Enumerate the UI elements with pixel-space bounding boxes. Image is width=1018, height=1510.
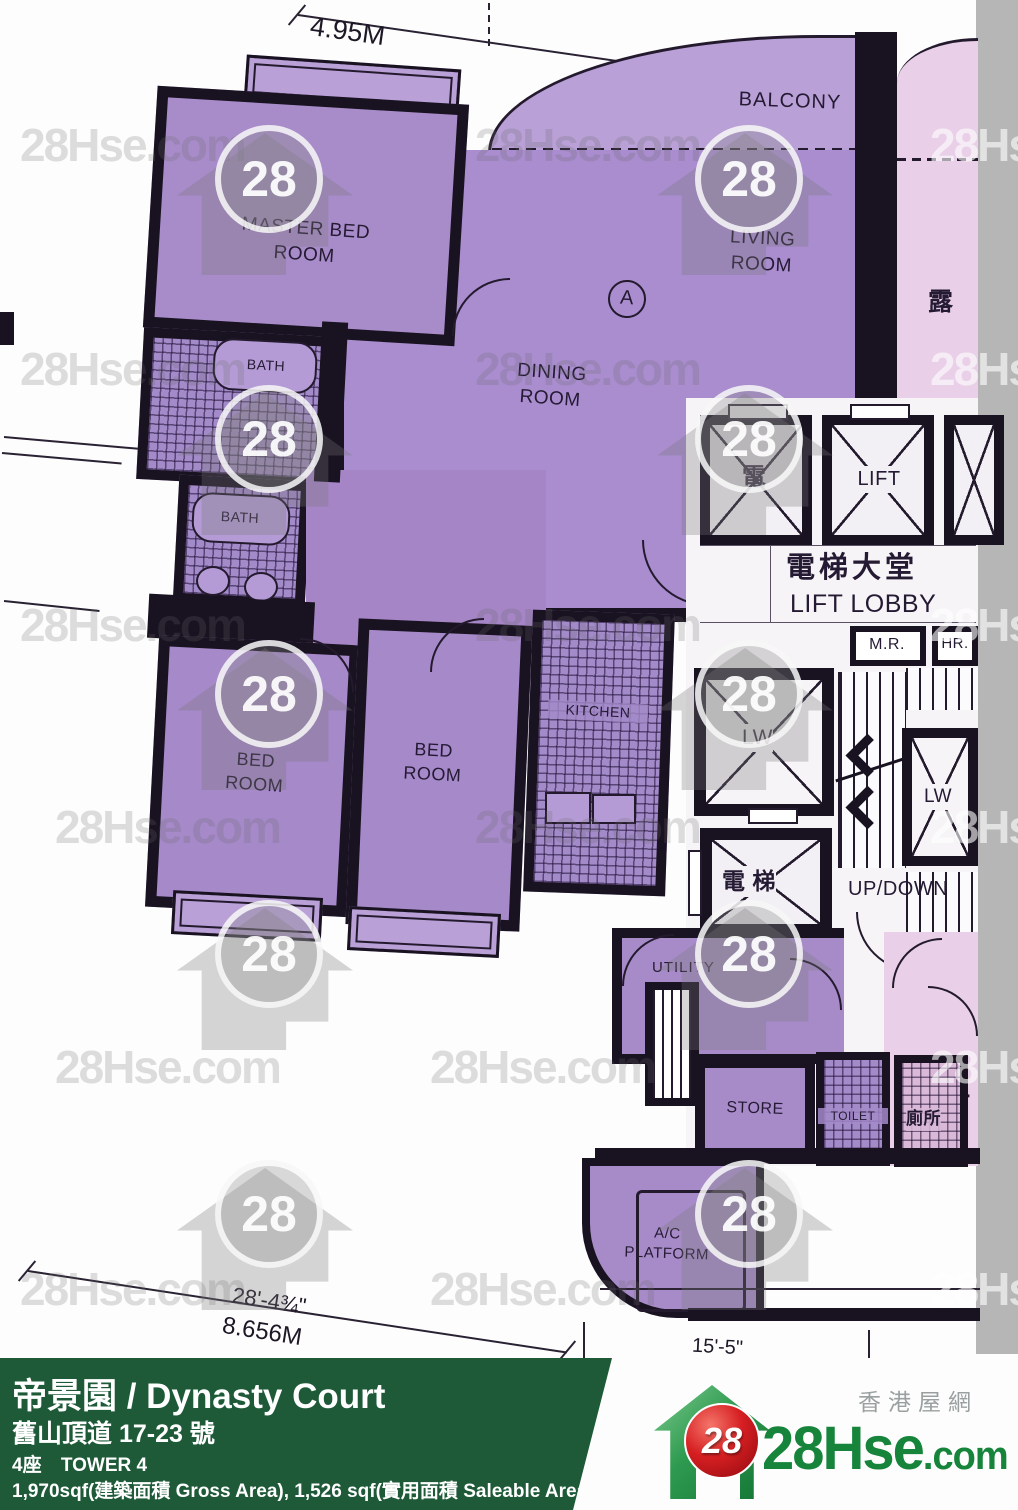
stairs-updown-label: UP/DOWN xyxy=(848,876,948,903)
dimension-tick xyxy=(868,1330,870,1358)
kitchen-counter xyxy=(592,794,636,824)
lift-shaft-electric-label: 電 xyxy=(742,462,767,494)
tower-en: TOWER 4 xyxy=(61,1455,147,1476)
lift-door xyxy=(688,850,702,916)
estate-areas: 1,970sqf(建築面積 Gross Area), 1,526 sqf(實用面… xyxy=(12,1476,593,1503)
hose-reel-label: HR. xyxy=(936,634,974,654)
bedroom-right-bay xyxy=(347,906,501,958)
brand-site-name: 28Hse.com xyxy=(762,1413,1008,1483)
kitchen-room xyxy=(523,610,675,897)
dimension-label-top: 4.95M xyxy=(308,11,387,52)
watermark-text: 28Hse.com xyxy=(55,1040,280,1094)
lift-door xyxy=(850,404,910,420)
basin xyxy=(196,566,230,596)
stairs-upper-right xyxy=(906,668,978,710)
kitchen-counter xyxy=(545,792,591,824)
bath-upper-label: BATH xyxy=(238,355,295,377)
hallway xyxy=(306,470,546,645)
lift-well-right-label: LW xyxy=(924,784,952,810)
lift-lobby-label-en: LIFT LOBBY xyxy=(790,588,936,622)
extension-line xyxy=(4,600,100,612)
lift-shaft-partial xyxy=(944,415,1004,545)
balcony-label: BALCONY xyxy=(735,86,846,117)
extension-line xyxy=(2,452,122,464)
store-label: STORE xyxy=(712,1097,799,1122)
scan-gray-band xyxy=(976,0,1018,1354)
living-room xyxy=(695,150,860,422)
dining-room-label: DINING ROOM xyxy=(506,357,595,414)
bedroom-left-label: BED ROOM xyxy=(208,745,301,800)
wall-bottom-2 xyxy=(688,1308,980,1321)
estate-tower: 4座 TOWER 4 xyxy=(12,1450,147,1477)
dimension-tick xyxy=(583,1322,585,1360)
site-line xyxy=(600,1288,980,1290)
toilet-zh-label: 廁所 xyxy=(906,1108,941,1131)
lift-label: LIFT xyxy=(844,466,914,493)
living-room-label: LIVING ROOM xyxy=(721,224,804,279)
lobby-floor-line xyxy=(700,545,976,546)
wall-bottom xyxy=(595,1148,980,1164)
footer-info-bar: 帝景園 / Dynasty Court 舊山頂道 17-23 號 4座 TOWE… xyxy=(0,1358,660,1510)
master-bedroom-label: MASTER BED ROOM xyxy=(233,211,376,272)
lobby-floor-line xyxy=(700,622,976,623)
wall-stub xyxy=(0,312,14,345)
ac-platform-label: A/C PLATFORM xyxy=(611,1222,722,1266)
lift-lobby-label-zh: 電梯大堂 xyxy=(786,549,918,588)
dimension-label-right-ft: 15'-5" xyxy=(691,1335,743,1361)
estate-address: 舊山頂道 17-23 號 xyxy=(12,1414,215,1450)
bath-lower-label: BATH xyxy=(212,507,269,529)
wall-living-right xyxy=(855,32,897,430)
louver-vent xyxy=(645,982,699,1106)
basin xyxy=(244,572,278,602)
tower-zh: 4座 xyxy=(12,1455,42,1476)
brand-site-suffix: .com xyxy=(923,1434,1008,1478)
bedroom-left-bay xyxy=(171,890,323,942)
extension-line xyxy=(4,436,152,451)
bedroom-right-label: BED ROOM xyxy=(387,736,479,789)
floorplan-canvas: 4.95M 露 MASTER BED ROOM BATH BATH BED RO… xyxy=(0,0,1018,1510)
lobby-floor-line xyxy=(770,545,771,623)
neighbor-balcony-label: 露 xyxy=(928,286,954,320)
lift-door xyxy=(748,808,798,824)
meter-room-label: M.R. xyxy=(858,634,916,656)
lift-well-left-label: LW xyxy=(742,724,773,752)
brand-logo-group: 香港屋網 28 28Hse.com xyxy=(640,1375,1018,1510)
toilet-label: TOILET xyxy=(818,1108,888,1124)
brand-site-main: 28Hse xyxy=(762,1414,923,1482)
watermark-text: 28Hse.com xyxy=(20,1262,245,1316)
brand-28-badge: 28 xyxy=(684,1403,760,1479)
lift-door xyxy=(728,404,788,420)
neighbor-balcony-line xyxy=(897,158,978,161)
watermark-28-badge: 28 xyxy=(215,1160,323,1268)
dimension-tick xyxy=(488,2,490,46)
dimension-label-bottom-m: 8.656M xyxy=(220,1312,303,1352)
estate-title: 帝景園 / Dynasty Court xyxy=(12,1368,385,1419)
lift-shaft-2-label: 電 梯 xyxy=(722,866,776,897)
brand-chinese-name: 香港屋網 xyxy=(858,1383,978,1417)
